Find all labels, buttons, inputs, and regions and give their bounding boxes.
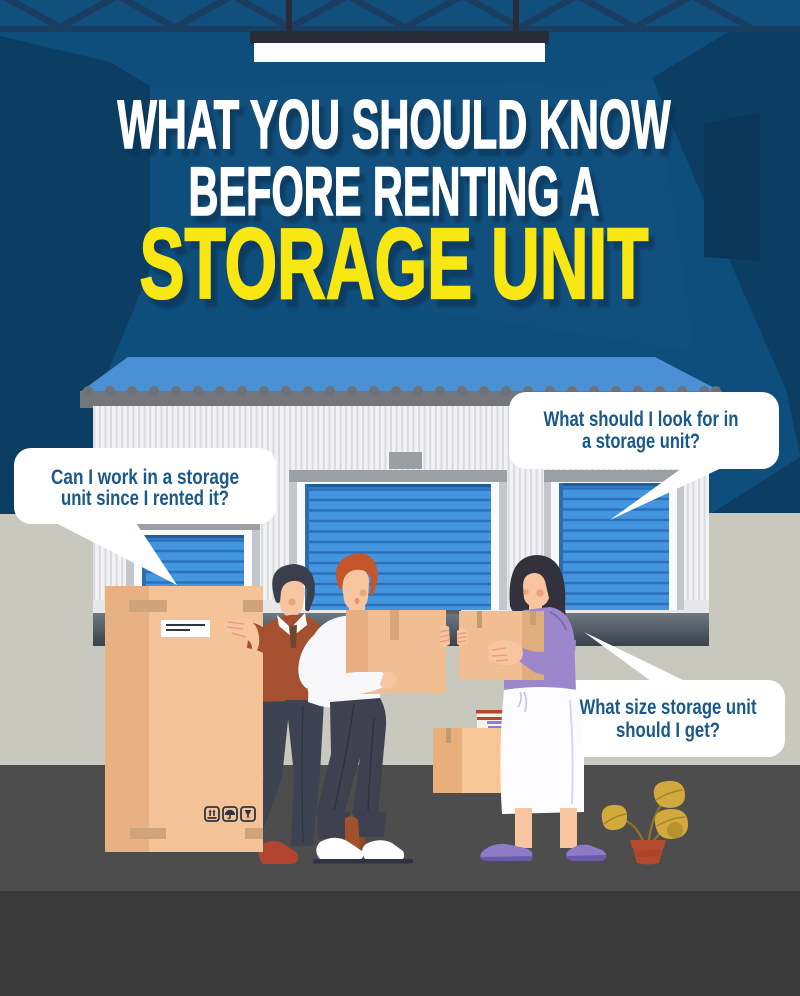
svg-text:unit since I rented it?: unit since I rented it? [61, 487, 229, 510]
svg-text:a storage unit?: a storage unit? [582, 430, 700, 453]
svg-text:STORAGE UNIT: STORAGE UNIT [140, 208, 649, 320]
svg-text:What should I look for in: What should I look for in [544, 408, 739, 431]
svg-text:Can I work in a storage: Can I work in a storage [51, 466, 239, 489]
svg-text:What size storage unit: What size storage unit [580, 696, 757, 719]
svg-text:WHAT YOU SHOULD KNOW: WHAT YOU SHOULD KNOW [118, 86, 672, 163]
svg-text:should I get?: should I get? [616, 719, 720, 742]
